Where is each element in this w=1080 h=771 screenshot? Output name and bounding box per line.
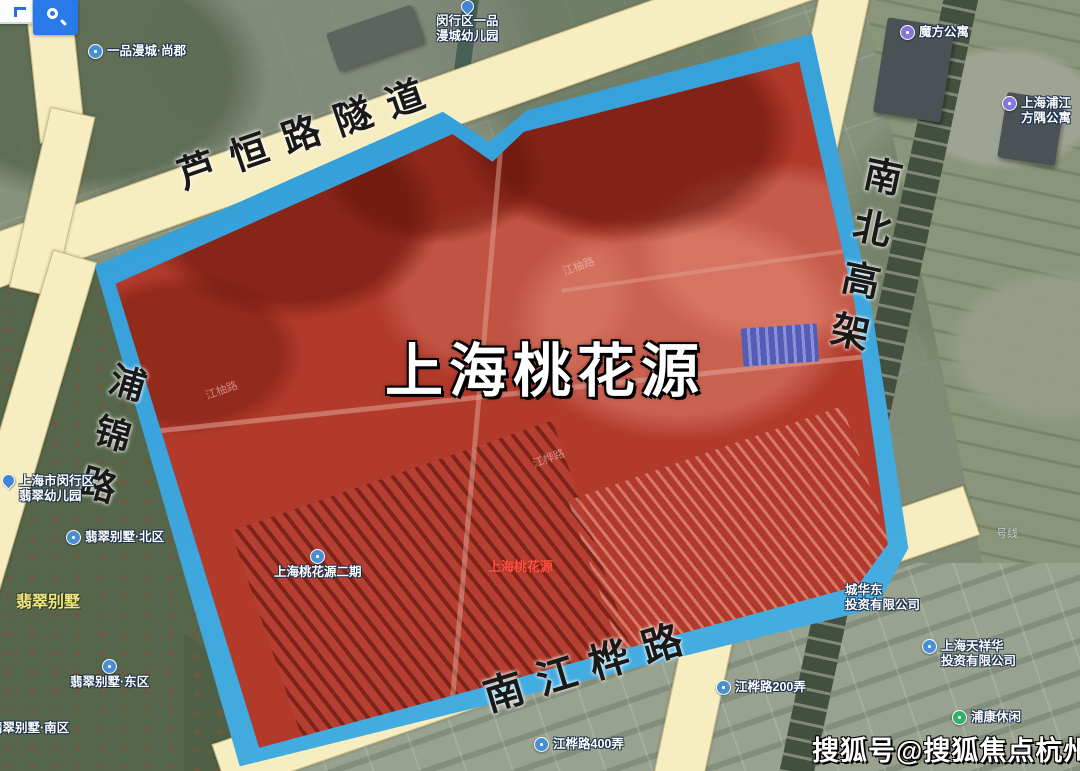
poi-mofang-apartment: 魔方公寓	[900, 25, 969, 40]
circle-blue-marker-icon[interactable]	[88, 44, 103, 59]
poi-label: 闵行区一品漫城幼儿园	[436, 14, 499, 44]
poi-label: 上海桃花源二期	[274, 565, 362, 580]
poi-label: 江桦路200弄	[735, 680, 806, 695]
poi-label: 上海市闵行区翡翠幼儿园	[19, 474, 94, 504]
poi-label: 翡翠别墅·北区	[85, 530, 164, 545]
search-icon-handle	[60, 19, 67, 26]
watermark: 搜狐号@搜狐焦点杭州站	[812, 729, 1080, 768]
circle-blue-marker-icon[interactable]	[716, 680, 731, 695]
circle-blue-marker-icon[interactable]	[102, 659, 117, 674]
poi-pujiang-funyard: 上海浦江方隅公寓	[1002, 96, 1071, 126]
poi-label: 号线	[996, 528, 1018, 541]
search-box-logo	[14, 7, 26, 17]
poi-feicui-villa-east: 翡翠别墅·东区	[70, 659, 149, 690]
circle-blue-marker-icon[interactable]	[310, 549, 325, 564]
circle-green-marker-icon[interactable]	[952, 710, 967, 725]
poi-yipin-mancheng-shangjun: 一品漫城·尚郡	[88, 44, 186, 59]
area-title: 上海桃花源	[385, 324, 705, 408]
poi-chenghuadong-invest: 城华东投资有限公司	[845, 583, 920, 613]
poi-feicui-villa-north: 翡翠别墅·北区	[66, 530, 164, 545]
poi-label: 上海桃花源	[488, 559, 553, 574]
poi-taohuayuan-phase2: 上海桃花源二期	[274, 549, 362, 580]
circle-blue-marker-icon[interactable]	[534, 737, 549, 752]
poi-feicui-villa-south: 翡翠别墅·南区	[0, 721, 69, 736]
poi-taohuayuan-red: 上海桃花源	[488, 559, 553, 574]
poi-label: 翡翠别墅·东区	[70, 675, 149, 690]
circle-blue-marker-icon[interactable]	[922, 639, 937, 654]
search-input[interactable]	[0, 0, 34, 24]
search-button[interactable]	[33, 0, 78, 35]
poi-label: 翡翠别墅·南区	[0, 721, 69, 736]
poi-jianghua-road-200: 江桦路200弄	[716, 680, 806, 695]
poi-feicui-kindergarten: 上海市闵行区翡翠幼儿园	[2, 474, 94, 504]
search-icon	[47, 8, 58, 19]
circle-blue-marker-icon[interactable]	[66, 530, 81, 545]
poi-tianxianghua-invest: 上海天祥华投资有限公司	[922, 639, 1016, 669]
poi-label: 城华东投资有限公司	[845, 583, 920, 613]
poi-minhang-kindergarten: 闵行区一品漫城幼儿园	[436, 0, 499, 44]
circle-purple-marker-icon[interactable]	[900, 25, 915, 40]
poi-label: 翡翠别墅	[16, 594, 80, 613]
pin-blue-marker-icon[interactable]	[0, 471, 18, 489]
poi-label: 一品漫城·尚郡	[107, 44, 186, 59]
map-canvas[interactable]: 江柚路江柚路江桦路 芦恒路隧道 南北高架 浦锦路 南江桦路 一品漫城·尚郡闵行区…	[0, 0, 1080, 771]
poi-label: 浦康休闲	[971, 710, 1021, 725]
poi-pukang-leisure: 浦康休闲	[952, 710, 1021, 725]
poi-metro-line: 号线	[996, 528, 1018, 541]
poi-feicui-villa: 翡翠别墅	[16, 594, 80, 613]
poi-label: 上海天祥华投资有限公司	[941, 639, 1016, 669]
poi-label: 江桦路400弄	[553, 737, 624, 752]
poi-label: 魔方公寓	[919, 25, 969, 40]
poi-label: 上海浦江方隅公寓	[1021, 96, 1071, 126]
poi-jianghua-road-400: 江桦路400弄	[534, 737, 624, 752]
circle-purple-marker-icon[interactable]	[1002, 96, 1017, 111]
